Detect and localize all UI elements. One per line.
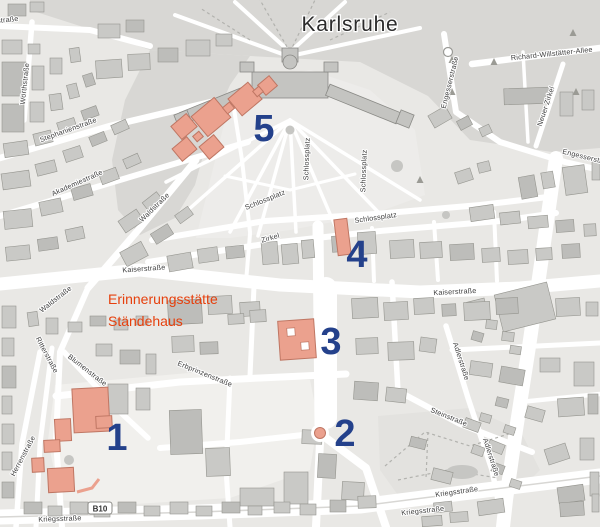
building	[46, 318, 58, 334]
building	[158, 48, 178, 62]
building	[536, 248, 553, 261]
building	[528, 215, 549, 229]
highlighted-site-dot[interactable]	[315, 428, 326, 439]
building	[2, 482, 14, 498]
building	[317, 454, 336, 479]
building	[2, 40, 22, 54]
building	[2, 306, 16, 328]
building	[108, 384, 128, 414]
building	[518, 175, 538, 199]
building	[206, 448, 231, 477]
building	[136, 388, 150, 410]
building	[186, 40, 210, 56]
building	[541, 171, 556, 189]
building	[197, 247, 219, 264]
building	[69, 47, 81, 62]
building	[24, 502, 42, 514]
fountain-circle	[442, 211, 450, 219]
marker-2[interactable]: 2	[334, 413, 355, 455]
building	[200, 342, 218, 355]
building	[172, 336, 195, 353]
map-container[interactable]: B10KriegsstraßeKriegsstraßeKriegsstraßeK…	[0, 0, 600, 527]
building	[222, 502, 240, 513]
building	[2, 424, 14, 444]
building	[592, 494, 599, 512]
building	[170, 502, 188, 514]
building	[540, 358, 560, 372]
building	[574, 362, 594, 386]
building	[586, 302, 598, 316]
building-courtyard	[287, 328, 296, 337]
street-label: Schlossplatz	[301, 137, 311, 180]
building	[32, 66, 44, 90]
building	[28, 44, 40, 54]
fountain-circle	[286, 126, 295, 135]
highlighted-building[interactable]	[32, 458, 45, 473]
building-courtyard	[301, 342, 310, 351]
building	[420, 241, 443, 258]
building	[128, 54, 151, 71]
marker-3[interactable]: 3	[320, 321, 341, 363]
building	[126, 20, 144, 32]
building	[27, 311, 39, 326]
road-number-label: B10	[93, 505, 108, 514]
building	[580, 438, 594, 460]
building	[90, 316, 106, 326]
building	[5, 245, 30, 261]
building	[482, 248, 501, 263]
building	[390, 239, 415, 258]
building	[358, 496, 376, 509]
building	[240, 488, 274, 506]
building	[560, 501, 585, 517]
fountain-circle	[64, 455, 74, 465]
building	[508, 249, 529, 264]
building	[68, 322, 82, 332]
memorial-label-line1: Erinnerungsstätte	[108, 291, 218, 307]
building	[250, 310, 267, 323]
building	[556, 219, 575, 232]
building	[469, 361, 493, 378]
building	[557, 397, 584, 417]
building	[30, 102, 44, 122]
building	[274, 502, 290, 513]
building	[486, 319, 498, 329]
building	[496, 297, 519, 314]
building	[2, 366, 16, 388]
building	[146, 354, 156, 374]
building	[2, 104, 24, 132]
building	[30, 2, 44, 12]
building	[450, 243, 475, 260]
building	[388, 342, 415, 361]
highlighted-building[interactable]	[278, 319, 317, 360]
karlsruhe-palace	[240, 62, 254, 72]
building	[95, 59, 122, 79]
building	[502, 331, 515, 341]
building	[582, 90, 594, 110]
street-label: Schlossplatz	[358, 149, 368, 192]
building	[169, 409, 203, 454]
highlighted-building[interactable]	[44, 440, 61, 453]
street-label: Kriegsstraße	[38, 513, 81, 524]
building	[225, 245, 244, 259]
building	[330, 500, 346, 512]
building	[216, 34, 232, 46]
building	[385, 387, 406, 403]
junction-circle	[444, 48, 453, 57]
building	[562, 244, 581, 259]
building	[2, 396, 12, 414]
building	[300, 504, 316, 515]
marker-4[interactable]: 4	[346, 234, 367, 276]
building	[469, 204, 495, 221]
building	[70, 502, 88, 514]
building	[450, 511, 469, 522]
building	[284, 472, 308, 504]
memorial-label-line2: Ständehaus	[108, 313, 183, 329]
marker-5[interactable]: 5	[253, 108, 274, 150]
building	[120, 350, 140, 364]
building	[50, 58, 62, 74]
building	[98, 24, 120, 38]
building	[422, 515, 443, 526]
building	[301, 240, 315, 259]
building	[3, 140, 29, 157]
building	[356, 338, 379, 355]
building	[261, 241, 279, 264]
building	[562, 165, 588, 196]
palace-tower	[283, 55, 297, 69]
building	[584, 224, 597, 237]
building	[560, 92, 573, 116]
building	[588, 394, 598, 414]
building	[2, 338, 14, 356]
building	[509, 345, 521, 354]
karlsruhe-palace	[324, 62, 338, 72]
highlighted-building[interactable]	[47, 467, 74, 492]
building	[556, 297, 581, 316]
map-canvas[interactable]: B10KriegsstraßeKriegsstraßeKriegsstraßeK…	[0, 0, 600, 527]
city-title: Karlsruhe	[301, 13, 398, 36]
building	[590, 472, 599, 496]
building	[442, 304, 457, 317]
fountain-circle	[391, 160, 403, 172]
building	[248, 506, 262, 515]
building	[353, 381, 378, 401]
building	[557, 484, 585, 503]
marker-1[interactable]: 1	[106, 417, 127, 459]
building	[281, 243, 299, 264]
building	[96, 344, 112, 356]
highlighted-building[interactable]	[54, 419, 71, 442]
building	[196, 506, 212, 516]
building	[419, 337, 437, 353]
building	[464, 301, 491, 320]
building	[384, 301, 409, 320]
building	[499, 211, 520, 225]
building	[3, 209, 33, 230]
building	[414, 297, 435, 314]
building	[37, 237, 58, 252]
building	[118, 502, 136, 513]
building	[351, 297, 378, 318]
building	[144, 506, 160, 516]
building	[49, 93, 63, 111]
building	[228, 314, 245, 325]
